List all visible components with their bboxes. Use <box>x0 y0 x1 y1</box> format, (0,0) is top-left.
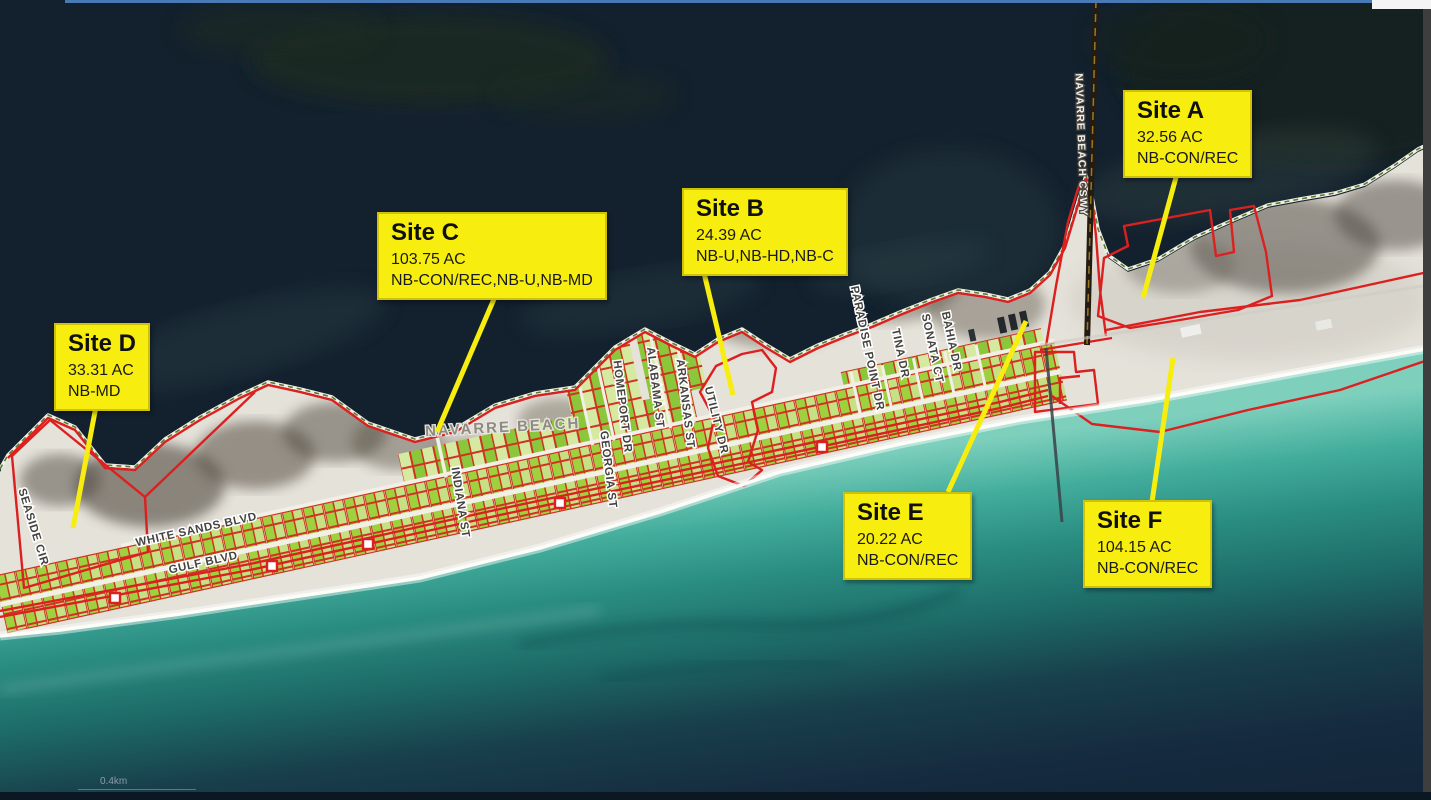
site-b-acreage: 24.39 AC <box>696 226 834 247</box>
site-b-title: Site B <box>696 196 834 222</box>
site-f-callout: Site F 104.15 AC NB-CON/REC <box>1083 500 1212 588</box>
top-border-line <box>65 0 1375 3</box>
site-e-title: Site E <box>857 500 958 526</box>
site-c-zoning: NB-CON/REC,NB-U,NB-MD <box>391 271 593 292</box>
scale-label: 0.4km <box>100 776 127 787</box>
site-b-zoning: NB-U,NB-HD,NB-C <box>696 247 834 268</box>
site-a-acreage: 32.56 AC <box>1137 128 1238 149</box>
scrollbar[interactable] <box>1423 9 1431 800</box>
site-c-title: Site C <box>391 220 593 246</box>
site-a-zoning: NB-CON/REC <box>1137 149 1238 170</box>
site-d-zoning: NB-MD <box>68 382 136 403</box>
site-e-zoning: NB-CON/REC <box>857 551 958 572</box>
scale-bar <box>78 789 196 790</box>
map-canvas: SEASIDE CIR WHITE SANDS BLVD GULF BLVD I… <box>0 0 1431 800</box>
site-d-callout: Site D 33.31 AC NB-MD <box>54 323 150 411</box>
site-c-callout: Site C 103.75 AC NB-CON/REC,NB-U,NB-MD <box>377 212 607 300</box>
site-f-title: Site F <box>1097 508 1198 534</box>
site-c-acreage: 103.75 AC <box>391 250 593 271</box>
site-a-title: Site A <box>1137 98 1238 124</box>
bottom-edge <box>0 792 1431 800</box>
site-a-callout: Site A 32.56 AC NB-CON/REC <box>1123 90 1252 178</box>
site-e-callout: Site E 20.22 AC NB-CON/REC <box>843 492 972 580</box>
site-b-callout: Site B 24.39 AC NB-U,NB-HD,NB-C <box>682 188 848 276</box>
top-right-white-edge <box>1372 0 1431 9</box>
site-f-acreage: 104.15 AC <box>1097 538 1198 559</box>
site-d-title: Site D <box>68 331 136 357</box>
site-e-acreage: 20.22 AC <box>857 530 958 551</box>
site-f-zoning: NB-CON/REC <box>1097 559 1198 580</box>
site-d-acreage: 33.31 AC <box>68 361 136 382</box>
